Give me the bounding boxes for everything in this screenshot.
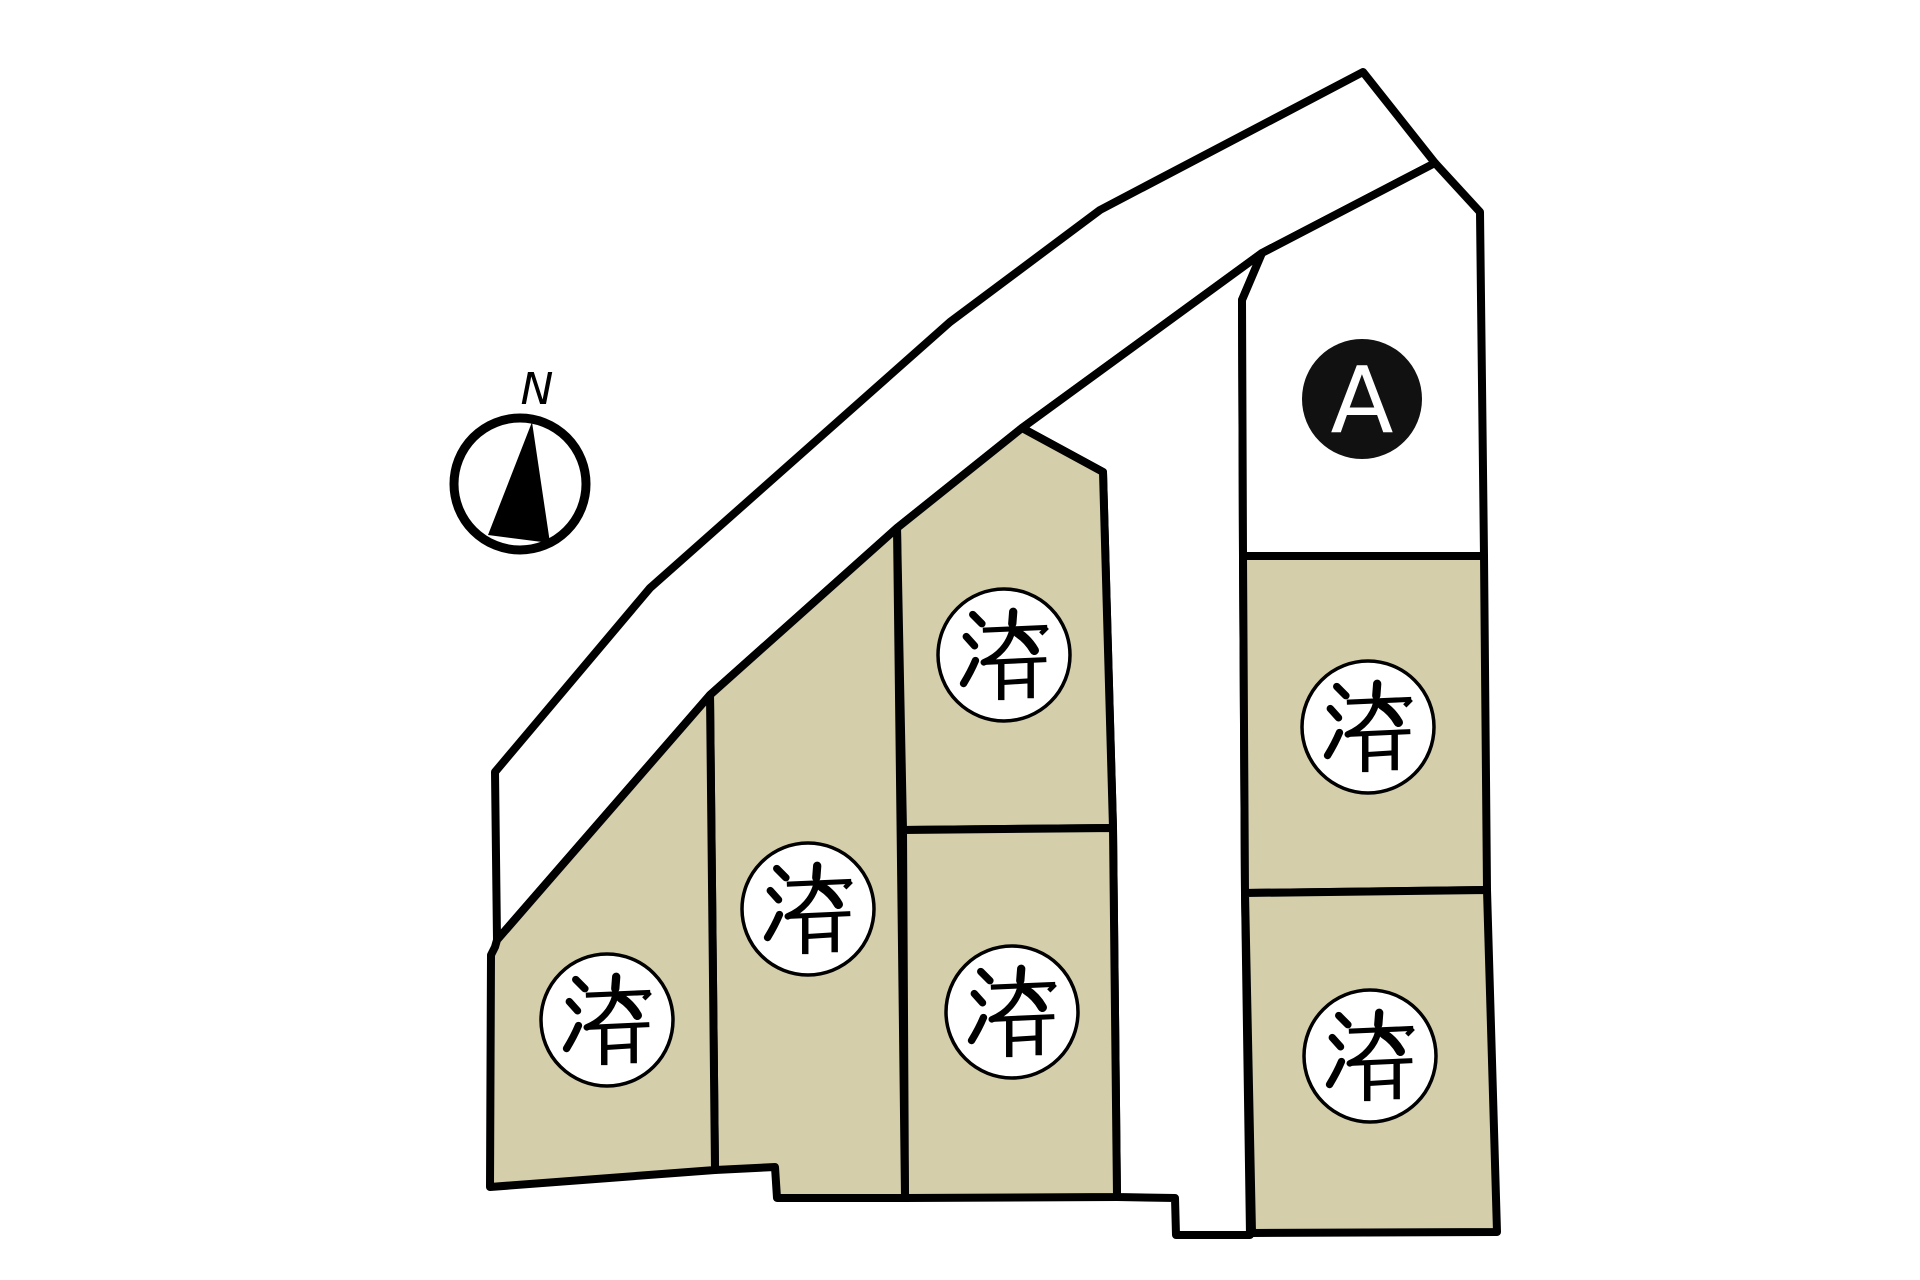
compass-needle <box>488 422 550 543</box>
compass: N <box>454 364 586 550</box>
sold-marker-left-upper: 済 <box>742 843 874 975</box>
sold-label: 済 <box>559 965 655 1077</box>
sold-marker-right-upper: 済 <box>1302 661 1434 793</box>
sold-marker-left-lower: 済 <box>541 954 673 1086</box>
sold-label: 済 <box>964 957 1060 1069</box>
sold-label: 済 <box>956 600 1052 712</box>
sold-label: 済 <box>1320 672 1416 784</box>
sold-marker-mid-upper: 済 <box>938 589 1070 721</box>
sold-marker-mid-lower: 済 <box>946 946 1078 1078</box>
lot-map-page: 済 済 済 済 済 <box>0 0 1920 1280</box>
sold-label: 済 <box>1322 1001 1418 1113</box>
available-label: A <box>1331 347 1394 454</box>
sold-marker-right-lower: 済 <box>1304 990 1436 1122</box>
available-marker-a: A <box>1302 339 1422 459</box>
compass-north-label: N <box>521 364 554 415</box>
sold-label: 済 <box>760 854 856 966</box>
lot-map-drawing: 済 済 済 済 済 <box>0 0 1920 1280</box>
